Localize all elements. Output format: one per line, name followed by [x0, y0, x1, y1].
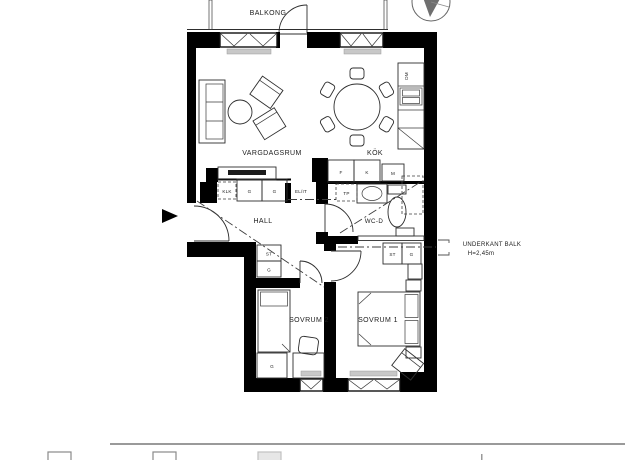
- dining-chairs: [319, 68, 394, 146]
- entrance-arrow-icon: [162, 209, 178, 223]
- wall-bottom-right: [400, 372, 437, 392]
- hall-closet-label: KLK: [222, 189, 232, 194]
- floorplan-page: BALKONG: [0, 0, 625, 460]
- legend-checkbox-3[interactable]: [258, 452, 281, 460]
- beam-note-bracket-icon: [438, 240, 449, 255]
- tv: [228, 170, 266, 175]
- kitchen: KÖK DM F K M: [319, 63, 424, 182]
- beam-note-line1: UNDERKANT BALK: [463, 242, 521, 248]
- bedroom2-door-swing-arc: [300, 261, 322, 283]
- hall-cabinet-g-label: G: [267, 268, 271, 273]
- washbasin-bowl: [362, 187, 382, 201]
- armchair-2-back: [256, 112, 277, 125]
- el-it-label: EL/IT: [295, 189, 307, 194]
- dining-chair-6: [319, 81, 336, 99]
- laundry-tower-label: TP: [343, 191, 349, 196]
- bedroom2-bed-fold: [282, 344, 290, 352]
- wc-door-swing-arc: [325, 204, 353, 232]
- wall-bedroom2-top: [256, 278, 300, 288]
- bedroom1-nightstand-2: [406, 347, 421, 358]
- interior-walls: [200, 158, 424, 392]
- coffee-table: [228, 100, 252, 124]
- dining-chair-2: [378, 81, 395, 99]
- dining-chair-1: [350, 68, 364, 79]
- wall-kitchen-pier: [312, 158, 328, 182]
- dining-chair-4: [350, 135, 364, 146]
- living-room-label: VARGDAGSRUM: [242, 150, 302, 157]
- dining-table: [334, 84, 380, 130]
- hall-wardrobe-1-label: G: [248, 189, 252, 194]
- wall-right: [424, 32, 437, 392]
- beam-note: UNDERKANT BALK H=2,45m: [438, 240, 521, 257]
- cabinet-m-label: M: [391, 171, 395, 176]
- radiator-bedroom1: [350, 371, 397, 376]
- kitchen-counter: DM: [398, 63, 424, 149]
- north-compass: [412, 0, 450, 21]
- counter-outline: [398, 63, 424, 149]
- dishwasher-label: DM: [404, 72, 409, 80]
- window-bedroom2: [300, 379, 323, 391]
- wall-wc-bottom-thin: [358, 236, 424, 241]
- sofa: [199, 80, 225, 143]
- bedroom-1: SOVRUM 1 ST G: [331, 243, 424, 380]
- bedroom1-bed-fold-1: [359, 293, 371, 304]
- bedroom1-pillow-2: [405, 321, 418, 344]
- radiator-living: [227, 49, 271, 54]
- dining-chair-5: [319, 115, 336, 133]
- armchair-2: [253, 108, 286, 140]
- wc-niche: [396, 228, 414, 236]
- bedroom1-door-swing-arc: [331, 251, 361, 281]
- bedroom1-bed-fold-2: [359, 334, 371, 345]
- bedroom1-armchair-back: [402, 353, 421, 368]
- bedroom1-cabinet-st-label: ST: [389, 252, 395, 257]
- window-living: [220, 33, 277, 47]
- wall-hall-pier-right: [285, 183, 291, 203]
- dining-chair-3: [378, 115, 395, 133]
- wall-bedroom1-pier: [324, 236, 336, 251]
- wc-d: WC-D TP: [325, 176, 423, 232]
- armchair-1-body: [250, 76, 283, 108]
- wall-hall-pier-left: [200, 182, 217, 203]
- wall-wc-left-upper: [316, 182, 328, 204]
- legend-tick: [481, 454, 483, 460]
- floorplan-drawing: BALKONG: [0, 0, 625, 460]
- bedroom1-cabinet-g-label: G: [410, 252, 414, 257]
- bedroom1-pillow-1: [405, 295, 418, 318]
- wall-tv-stub: [206, 168, 218, 182]
- cabinet-k-label: K: [365, 170, 369, 175]
- armchair-1-back: [260, 80, 280, 94]
- hall: HALL G G KLK EL/IT ST G: [218, 179, 307, 277]
- wall-top-pier-2: [307, 32, 340, 48]
- bedroom2-pillow: [261, 292, 288, 306]
- armchair-1: [250, 76, 283, 108]
- sink-bowl-2: [403, 98, 420, 104]
- legend-checkbox-2[interactable]: [153, 452, 176, 460]
- bedroom2-wardrobe-label: G: [270, 364, 274, 369]
- hall-cabinet-st-label: ST: [266, 252, 272, 257]
- wall-top-left-corner: [187, 32, 220, 48]
- bedroom2-label: SOVRUM 2: [289, 317, 329, 324]
- compass-north-arrow-icon: [421, 0, 441, 17]
- hall-wardrobe-2-label: G: [273, 189, 277, 194]
- counter-diagonal: [398, 128, 424, 149]
- bedroom2-bed: [258, 290, 290, 352]
- balcony: BALKONG: [187, 0, 388, 34]
- beam-note-line2: H=2,45m: [468, 251, 495, 257]
- balcony-railing-post-right: [384, 0, 387, 30]
- hall-label: HALL: [253, 218, 272, 225]
- toilet-bowl: [388, 197, 406, 227]
- bedroom1-nightstand-1: [406, 280, 421, 291]
- bedroom1-label: SOVRUM 1: [358, 317, 398, 324]
- cabinet-f-label: F: [339, 170, 342, 175]
- radiator-bedroom2: [301, 371, 321, 376]
- bedroom1-side-cabinet: [408, 264, 422, 279]
- entrance: [162, 206, 229, 241]
- living-room: VARGDAGSRUM: [199, 76, 302, 180]
- sink-unit: [400, 88, 422, 105]
- fridge-freezer-row: F K M: [328, 160, 404, 182]
- radiator-kitchen: [344, 49, 381, 54]
- wall-left-upper: [187, 48, 196, 203]
- balcony-railing-post-left: [209, 0, 212, 30]
- balcony-label: BALKONG: [250, 10, 287, 17]
- wall-left-lower: [244, 250, 256, 392]
- wall-bottom-left: [244, 378, 300, 392]
- wc-label: WC-D: [365, 218, 384, 225]
- sofa-seat: [206, 84, 223, 139]
- wall-bedroom-divider: [324, 282, 336, 392]
- bedroom2-chair: [298, 336, 319, 355]
- sink-bowl-1: [403, 90, 420, 96]
- legend-strip: [48, 444, 625, 460]
- kitchen-label: KÖK: [367, 149, 383, 157]
- legend-checkbox-1[interactable]: [48, 452, 71, 460]
